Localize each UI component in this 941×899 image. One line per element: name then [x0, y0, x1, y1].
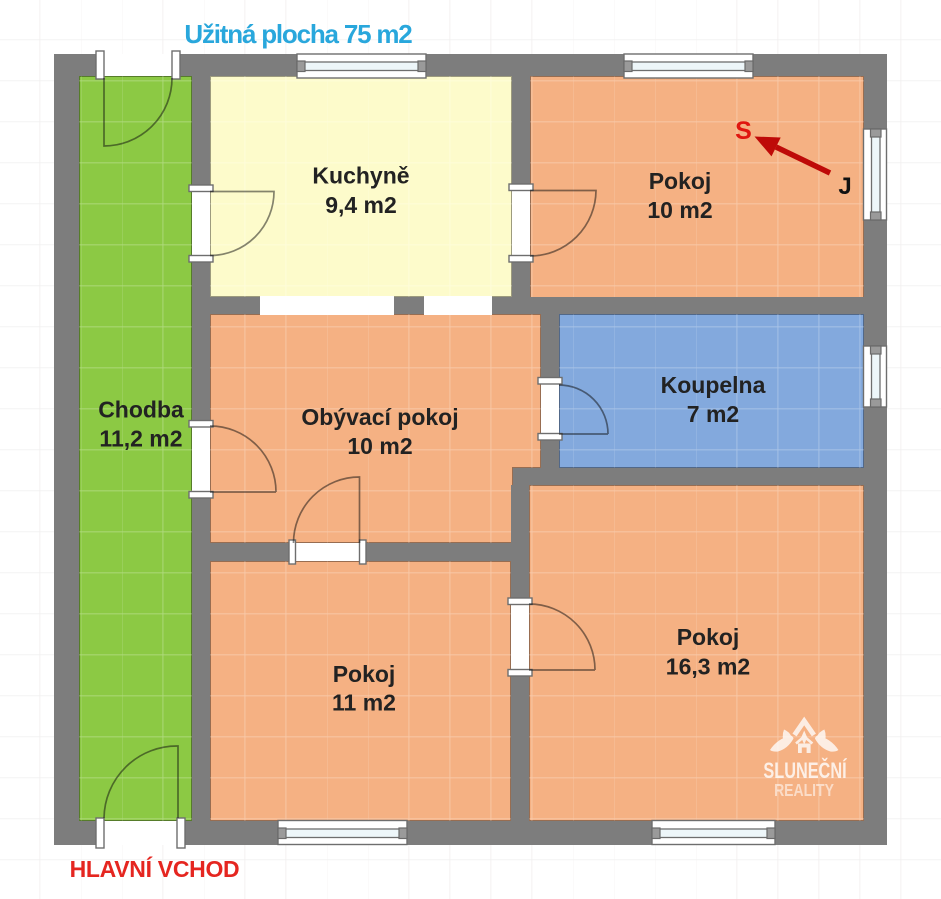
svg-text:Užitná plocha 75 m2: Užitná plocha 75 m2 — [184, 19, 412, 49]
svg-text:HLAVNÍ VCHOD: HLAVNÍ VCHOD — [70, 855, 240, 882]
svg-text:SLUNEČNÍ: SLUNEČNÍ — [763, 756, 847, 783]
svg-text:S: S — [735, 117, 752, 145]
svg-text:J: J — [838, 173, 851, 200]
svg-text:REALITY: REALITY — [774, 782, 834, 801]
